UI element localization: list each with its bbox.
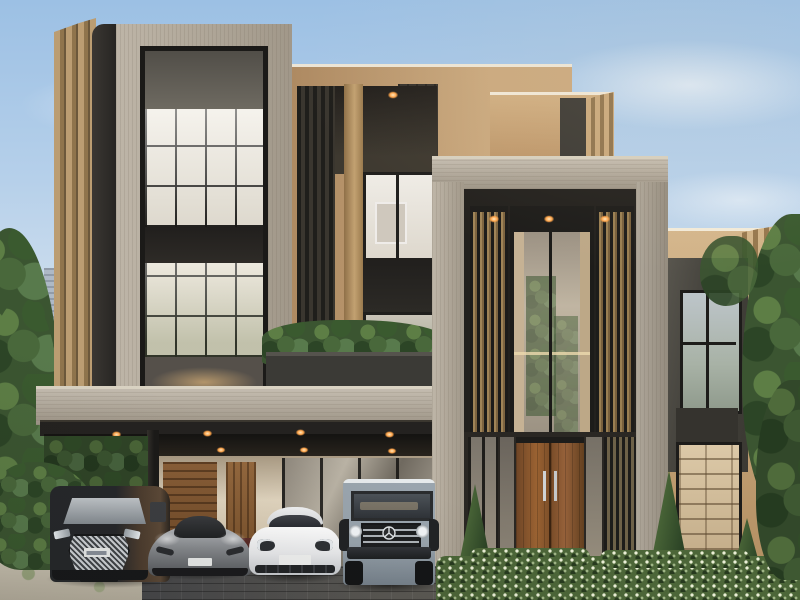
stepped-box-dark-panel xyxy=(560,98,586,162)
car-intake xyxy=(255,565,335,573)
car-headlight xyxy=(349,525,362,538)
spandrel-centre xyxy=(363,258,435,312)
architectural-render xyxy=(0,0,800,600)
window-mullion xyxy=(706,290,709,408)
glass-shade-top xyxy=(145,51,263,109)
window-mullion xyxy=(396,172,399,258)
interior-light-line xyxy=(514,352,590,355)
license-plate xyxy=(279,555,311,565)
framed-art xyxy=(375,202,407,244)
license-plate xyxy=(84,548,110,557)
bronze-corner-column xyxy=(92,24,118,390)
interior-hint xyxy=(360,502,418,510)
stepped-fins xyxy=(586,92,614,162)
fender-flare xyxy=(429,519,439,551)
carport-downlight xyxy=(294,428,307,437)
mclaren-supercar xyxy=(148,516,252,580)
door-handle xyxy=(554,471,557,501)
car-bumper xyxy=(52,570,148,580)
entry-frame-top xyxy=(432,156,668,189)
carport-downlight xyxy=(298,446,310,454)
left-tower-window xyxy=(140,46,268,404)
car-windshield xyxy=(58,498,146,524)
carport-downlight xyxy=(386,447,398,455)
fender-flare xyxy=(339,519,349,551)
car-wheel xyxy=(345,561,363,585)
right-wing-window-upper xyxy=(680,290,742,414)
entry-side-glass xyxy=(586,437,602,565)
carport-downlight xyxy=(383,430,396,439)
fender-highlight xyxy=(220,532,246,546)
flowering-hedge xyxy=(600,550,750,568)
gridded-glazing-upper xyxy=(145,109,263,227)
car-headlight xyxy=(315,539,333,551)
car-windshield xyxy=(351,491,433,521)
car-headlight xyxy=(257,539,275,551)
bronze-fins xyxy=(54,18,96,390)
interior-tree-silhouette xyxy=(554,316,578,436)
mercedes-g-class xyxy=(339,479,439,593)
spandrel-left-tower xyxy=(145,227,263,263)
entry-side-slats xyxy=(604,437,636,565)
gridded-glazing-lower xyxy=(145,263,263,357)
right-wing-spandrel xyxy=(676,408,738,442)
car-wheel xyxy=(415,561,433,585)
entry-downlight xyxy=(542,214,556,224)
porsche-panamera xyxy=(249,507,341,581)
window-mullion xyxy=(680,342,736,345)
entry-downlight xyxy=(487,214,501,224)
fender-highlight xyxy=(154,532,180,546)
car-bumper xyxy=(347,547,431,559)
entry-tower xyxy=(432,156,668,568)
door-handle xyxy=(543,471,546,501)
car-splitter xyxy=(152,568,248,576)
carport-downlight xyxy=(215,446,227,454)
entry-downlight xyxy=(598,214,612,224)
license-plate xyxy=(188,558,212,566)
slat-screen-right xyxy=(596,206,634,444)
facade-downlight xyxy=(386,90,400,100)
car-headlight xyxy=(416,525,429,538)
car-canopy xyxy=(174,516,226,538)
mercedes-star-icon xyxy=(382,526,396,540)
flowering-hedge xyxy=(470,548,590,566)
carport-downlight xyxy=(201,429,214,438)
slat-screen-left xyxy=(470,206,508,444)
entry-sidelite xyxy=(500,437,514,565)
